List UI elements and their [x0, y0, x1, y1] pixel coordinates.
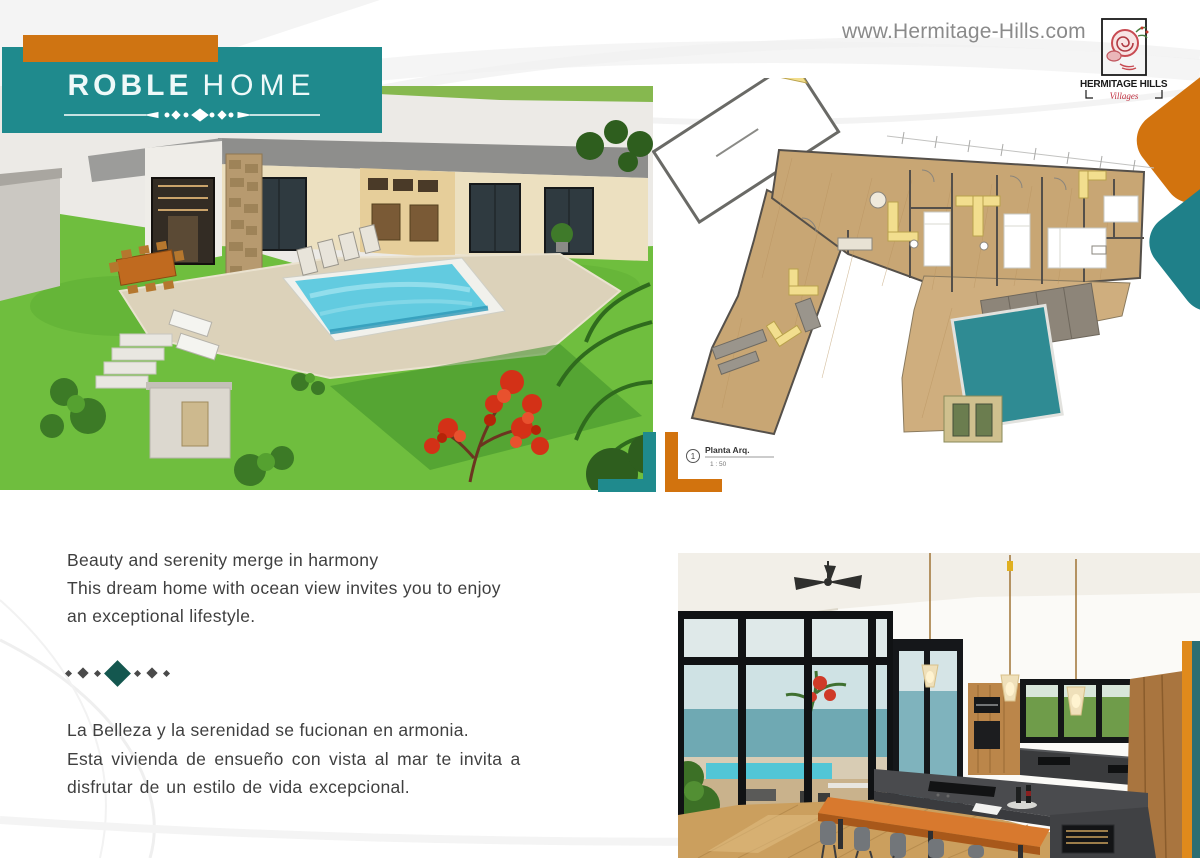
website-url[interactable]: www.Hermitage-Hills.com: [842, 20, 1072, 44]
desc-es-line3: disfrutar de un estilo de vida excepcion…: [67, 773, 587, 802]
desc-en-line3: an exceptional lifestyle.: [67, 602, 587, 630]
desc-es-line2: Esta vivienda de ensueño con vista al ma…: [67, 745, 587, 774]
interior-render-photo: [678, 553, 1200, 858]
plan-callout-number: 1: [691, 452, 696, 461]
desc-en-line2: This dream home with ocean view invites …: [67, 574, 587, 602]
page-title: ROBLEHOME: [68, 71, 317, 101]
brochure-page: 1 Planta Arq. 1 : 50: [0, 0, 1200, 858]
desc-es-line1: La Belleza y la serenidad se fucionan en…: [67, 716, 587, 745]
description-spanish: La Belleza y la serenidad se fucionan en…: [67, 716, 587, 802]
plan-callout-title: Planta Arq.: [705, 445, 750, 455]
logo-name: HERMITAGE HILLS: [1080, 79, 1168, 90]
teal-diamond: [104, 660, 131, 687]
title-secondary: HOME: [203, 69, 317, 102]
shell-icon: [1107, 27, 1149, 70]
exterior-render-photo: [0, 86, 653, 490]
orange-corner-accent: [665, 479, 722, 492]
diamond-divider: [66, 658, 169, 688]
logo-tagline: Villages: [1110, 91, 1139, 101]
title-primary: ROBLE: [68, 69, 193, 102]
desc-en-line1: Beauty and serenity merge in harmony: [67, 546, 587, 574]
header-orange-bar: [23, 35, 218, 62]
teal-corner-accent: [598, 479, 656, 492]
plan-callout-scale: 1 : 50: [710, 461, 727, 468]
description-english: Beauty and serenity merge in harmony Thi…: [67, 546, 587, 630]
hermitage-hills-logo: HERMITAGE HILLS Villages: [1076, 14, 1172, 108]
title-divider-ornament: [62, 107, 322, 123]
floor-plan-drawing: 1 Planta Arq. 1 : 50: [652, 78, 1162, 468]
